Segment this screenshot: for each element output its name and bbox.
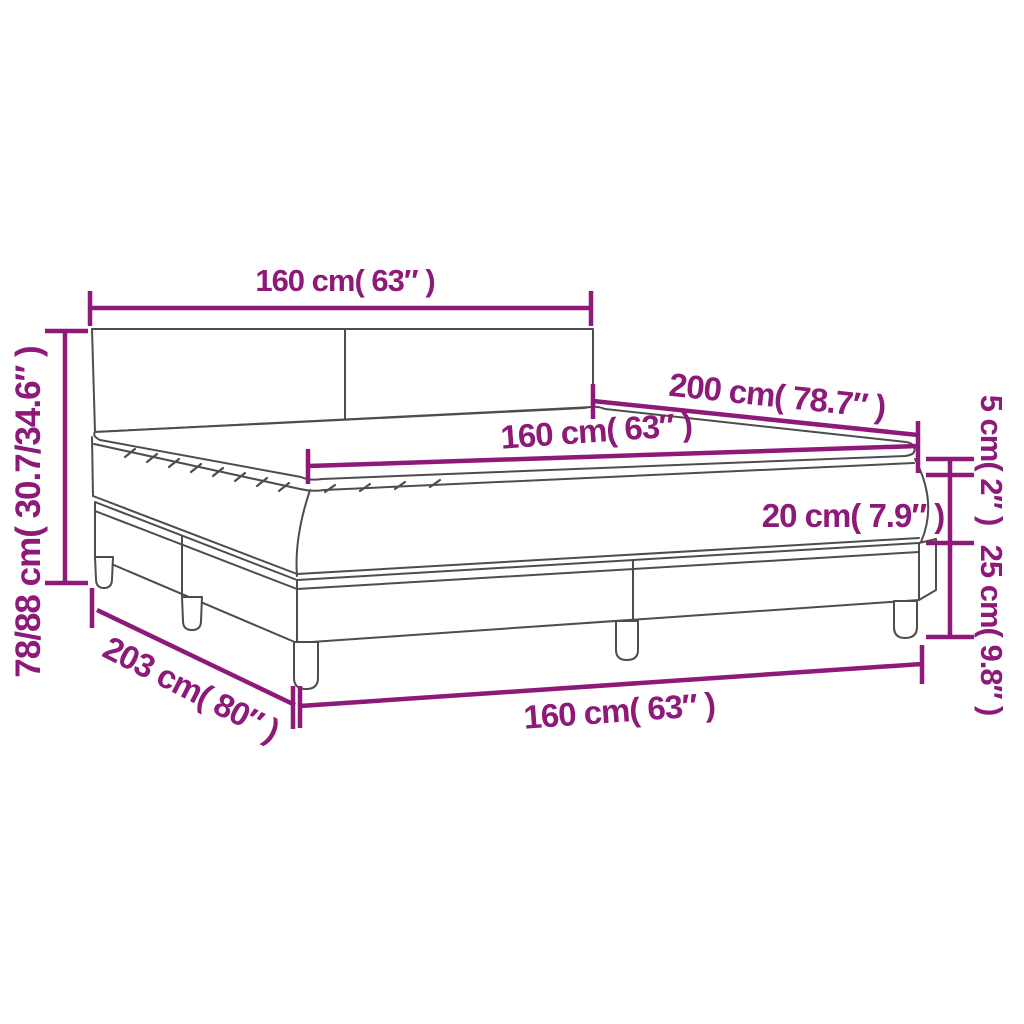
bed-leg-front-right bbox=[894, 601, 917, 638]
dim-topper-height-label: 5 cm( 2″ ) bbox=[974, 395, 1009, 526]
bed-dimension-diagram: 160 cm( 63″ ) 78/88 cm( 30.7/34.6″ ) 160… bbox=[0, 0, 1024, 1024]
dim-base-height-label: 25 cm( 9.8″ ) bbox=[974, 545, 1009, 716]
figure-canvas: 160 cm( 63″ ) 78/88 cm( 30.7/34.6″ ) 160… bbox=[0, 0, 1024, 1024]
dim-base-width-label: 160 cm( 63″ ) bbox=[522, 685, 716, 735]
dim-height-stack: 5 cm( 2″ ) 25 cm( 9.8″ ) bbox=[926, 395, 1009, 716]
bed-leg-front-middle bbox=[616, 621, 638, 660]
mattress-front-corner bbox=[297, 490, 310, 576]
bed-leg-back-left bbox=[95, 557, 113, 588]
bed-leg-front-left bbox=[294, 642, 318, 689]
dim-bed-length-label: 200 cm( 78.7″ ) bbox=[667, 366, 887, 426]
dim-total-height-label: 78/88 cm( 30.7/34.6″ ) bbox=[9, 346, 48, 677]
dim-headboard-width-label: 160 cm( 63″ ) bbox=[255, 263, 434, 298]
dim-total-height: 78/88 cm( 30.7/34.6″ ) bbox=[9, 331, 88, 678]
dim-total-height-line bbox=[45, 331, 88, 583]
dim-base-width: 160 cm( 63″ ) bbox=[300, 645, 922, 736]
dim-mattress-height-label: 20 cm( 7.9″ ) bbox=[762, 497, 945, 534]
bed-leg-left-middle bbox=[182, 597, 202, 630]
dim-headboard-width: 160 cm( 63″ ) bbox=[90, 263, 591, 326]
mattress-left-edge bbox=[92, 437, 93, 496]
